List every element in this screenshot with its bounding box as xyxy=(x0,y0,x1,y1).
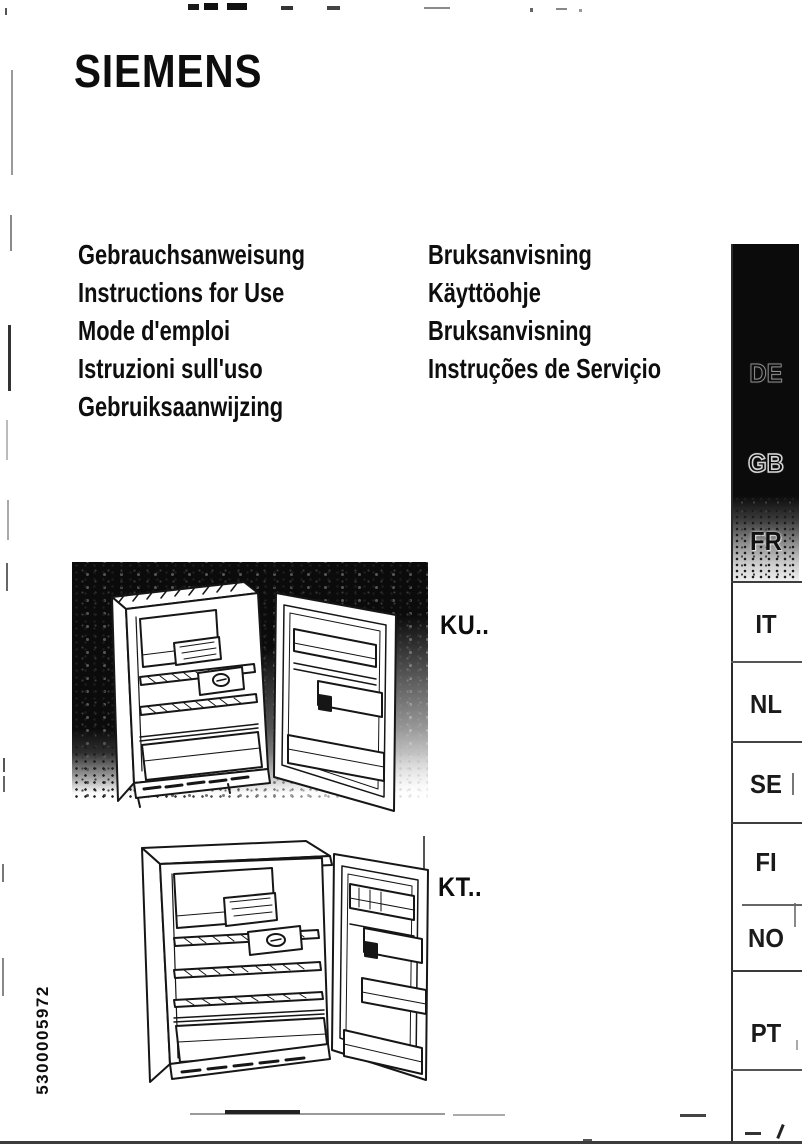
scan-mark xyxy=(680,1114,706,1117)
scan-mark xyxy=(327,6,340,10)
scan-mark xyxy=(3,776,5,792)
language-tab-fr: FR xyxy=(736,526,797,556)
scan-mark xyxy=(188,4,199,10)
scan-mark xyxy=(424,7,450,9)
scan-mark xyxy=(556,8,567,10)
title-finnish: Käyttöohje xyxy=(428,274,661,312)
language-tab-de: DE xyxy=(736,358,797,388)
model-label-ku: KU.. xyxy=(440,610,489,641)
scan-mark xyxy=(530,8,533,12)
scan-mark xyxy=(227,3,247,10)
title-norwegian: Bruksanvisning xyxy=(428,312,661,350)
scan-mark xyxy=(579,9,582,12)
title-english: Instructions for Use xyxy=(78,274,305,312)
fridge-ku-illustration xyxy=(78,565,428,821)
title-list-left: Gebrauchsanweisung Instructions for Use … xyxy=(78,236,369,426)
scan-mark xyxy=(6,420,8,460)
language-tab-fi: FI xyxy=(736,847,797,877)
scan-mark xyxy=(6,563,8,591)
scan-mark xyxy=(8,325,11,391)
scan-mark xyxy=(776,1124,784,1139)
sidebar-divider xyxy=(731,661,802,663)
title-portuguese: Instruções de Serviçio xyxy=(428,350,661,388)
language-tab-no: NO xyxy=(736,923,797,953)
language-tab-it: IT xyxy=(736,609,797,639)
title-french: Mode d'emploi xyxy=(78,312,305,350)
scan-mark xyxy=(7,500,9,540)
scan-mark xyxy=(10,215,12,251)
scan-mark xyxy=(11,70,13,175)
sidebar-divider xyxy=(731,1069,802,1071)
serial-number-vertical: 5300005972 xyxy=(33,985,53,1095)
scan-mark xyxy=(225,1110,300,1114)
sidebar-divider xyxy=(731,581,802,583)
sidebar-divider xyxy=(742,904,802,906)
scan-mark xyxy=(5,8,7,15)
language-tab-nl: NL xyxy=(736,689,797,719)
scan-mark xyxy=(281,6,293,10)
title-italian: Istruzioni sull'uso xyxy=(78,350,305,388)
sidebar-divider xyxy=(731,822,802,824)
model-label-kt: KT.. xyxy=(438,872,482,903)
page-bottom-rule xyxy=(0,1141,802,1144)
scan-mark xyxy=(745,1132,761,1135)
scan-mark xyxy=(2,864,4,882)
scan-mark xyxy=(2,958,4,996)
title-list-right: Bruksanvisning Käyttöohje Bruksanvisning… xyxy=(428,236,727,388)
brand-logo: SIEMENS xyxy=(74,44,262,98)
scan-mark xyxy=(204,3,218,10)
sidebar-divider xyxy=(731,970,802,972)
language-tab-pt: PT xyxy=(736,1018,797,1048)
fridge-kt-illustration xyxy=(96,832,436,1094)
manual-cover-page: SIEMENS Gebrauchsanweisung Instructions … xyxy=(0,0,802,1146)
scan-mark xyxy=(3,758,5,772)
language-tab-gb: GB xyxy=(736,448,797,478)
title-german: Gebrauchsanweisung xyxy=(78,236,305,274)
title-dutch: Gebruiksaanwijzing xyxy=(78,388,305,426)
scan-mark xyxy=(453,1114,505,1116)
title-swedish: Bruksanvisning xyxy=(428,236,661,274)
sidebar-divider xyxy=(731,741,802,743)
language-tab-se: SE xyxy=(736,769,797,799)
